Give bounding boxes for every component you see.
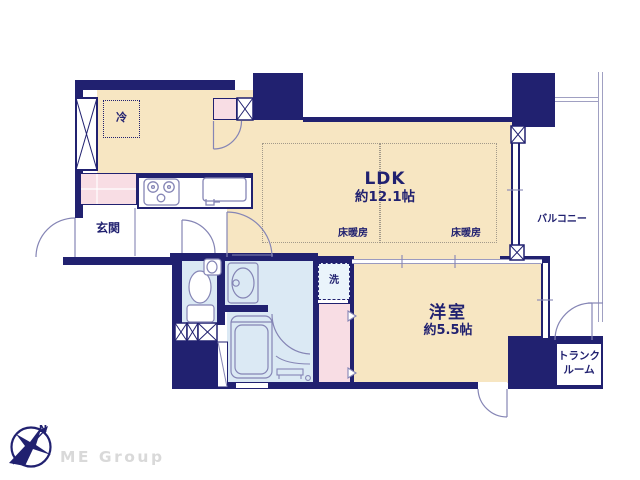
trunk-room-label-line2: ルーム xyxy=(556,364,602,376)
compass-north-label: N xyxy=(36,424,50,436)
cabinet-dividers xyxy=(81,174,136,204)
pipe-space-kitchen xyxy=(237,98,253,120)
kitchen-hall-door xyxy=(214,121,242,149)
toilet xyxy=(187,259,221,322)
plan-linework xyxy=(0,0,640,480)
balcony-label: バルコニー xyxy=(526,214,598,226)
bathtub xyxy=(231,316,272,378)
pillar-box-left xyxy=(76,98,97,170)
fridge-label: 冷 xyxy=(103,112,140,125)
vanity-basin xyxy=(228,263,258,303)
closet-direction-arrows xyxy=(348,311,356,378)
trunk-room-label-line1: トランク xyxy=(556,350,602,362)
trunk-room-door xyxy=(555,303,603,340)
washer-label: 洗 xyxy=(318,275,350,287)
hall-door xyxy=(182,220,215,253)
floor-plan: 冷 玄関 LDK 約12.1帖 床暖房 床暖房 洗 洋室 約5.5帖 バルコニー… xyxy=(0,0,640,480)
western-room-label: 洋室 xyxy=(398,304,498,324)
western-room-exterior-door xyxy=(478,389,507,417)
entrance-door xyxy=(36,218,75,257)
ldk-label: LDK xyxy=(335,170,435,190)
pipe-space-balcony-bottom xyxy=(510,245,524,260)
ldk-door xyxy=(227,212,273,257)
floor-heating-right-label: 床暖房 xyxy=(440,228,492,240)
bathroom-door xyxy=(272,314,310,354)
kitchen-sink xyxy=(203,178,246,205)
stove xyxy=(144,179,179,205)
watermark-logo: ME Group xyxy=(60,449,220,467)
duct-strip xyxy=(218,342,228,387)
pipe-space-balcony-top xyxy=(511,126,525,143)
entrance-label: 玄関 xyxy=(86,222,130,236)
pipe-spaces-toilet-row xyxy=(175,323,217,341)
ldk-size-label: 約12.1帖 xyxy=(325,190,445,206)
bath-bench xyxy=(276,356,310,380)
western-room-size-label: 約5.5帖 xyxy=(403,324,493,339)
floor-heating-left-label: 床暖房 xyxy=(327,228,379,240)
